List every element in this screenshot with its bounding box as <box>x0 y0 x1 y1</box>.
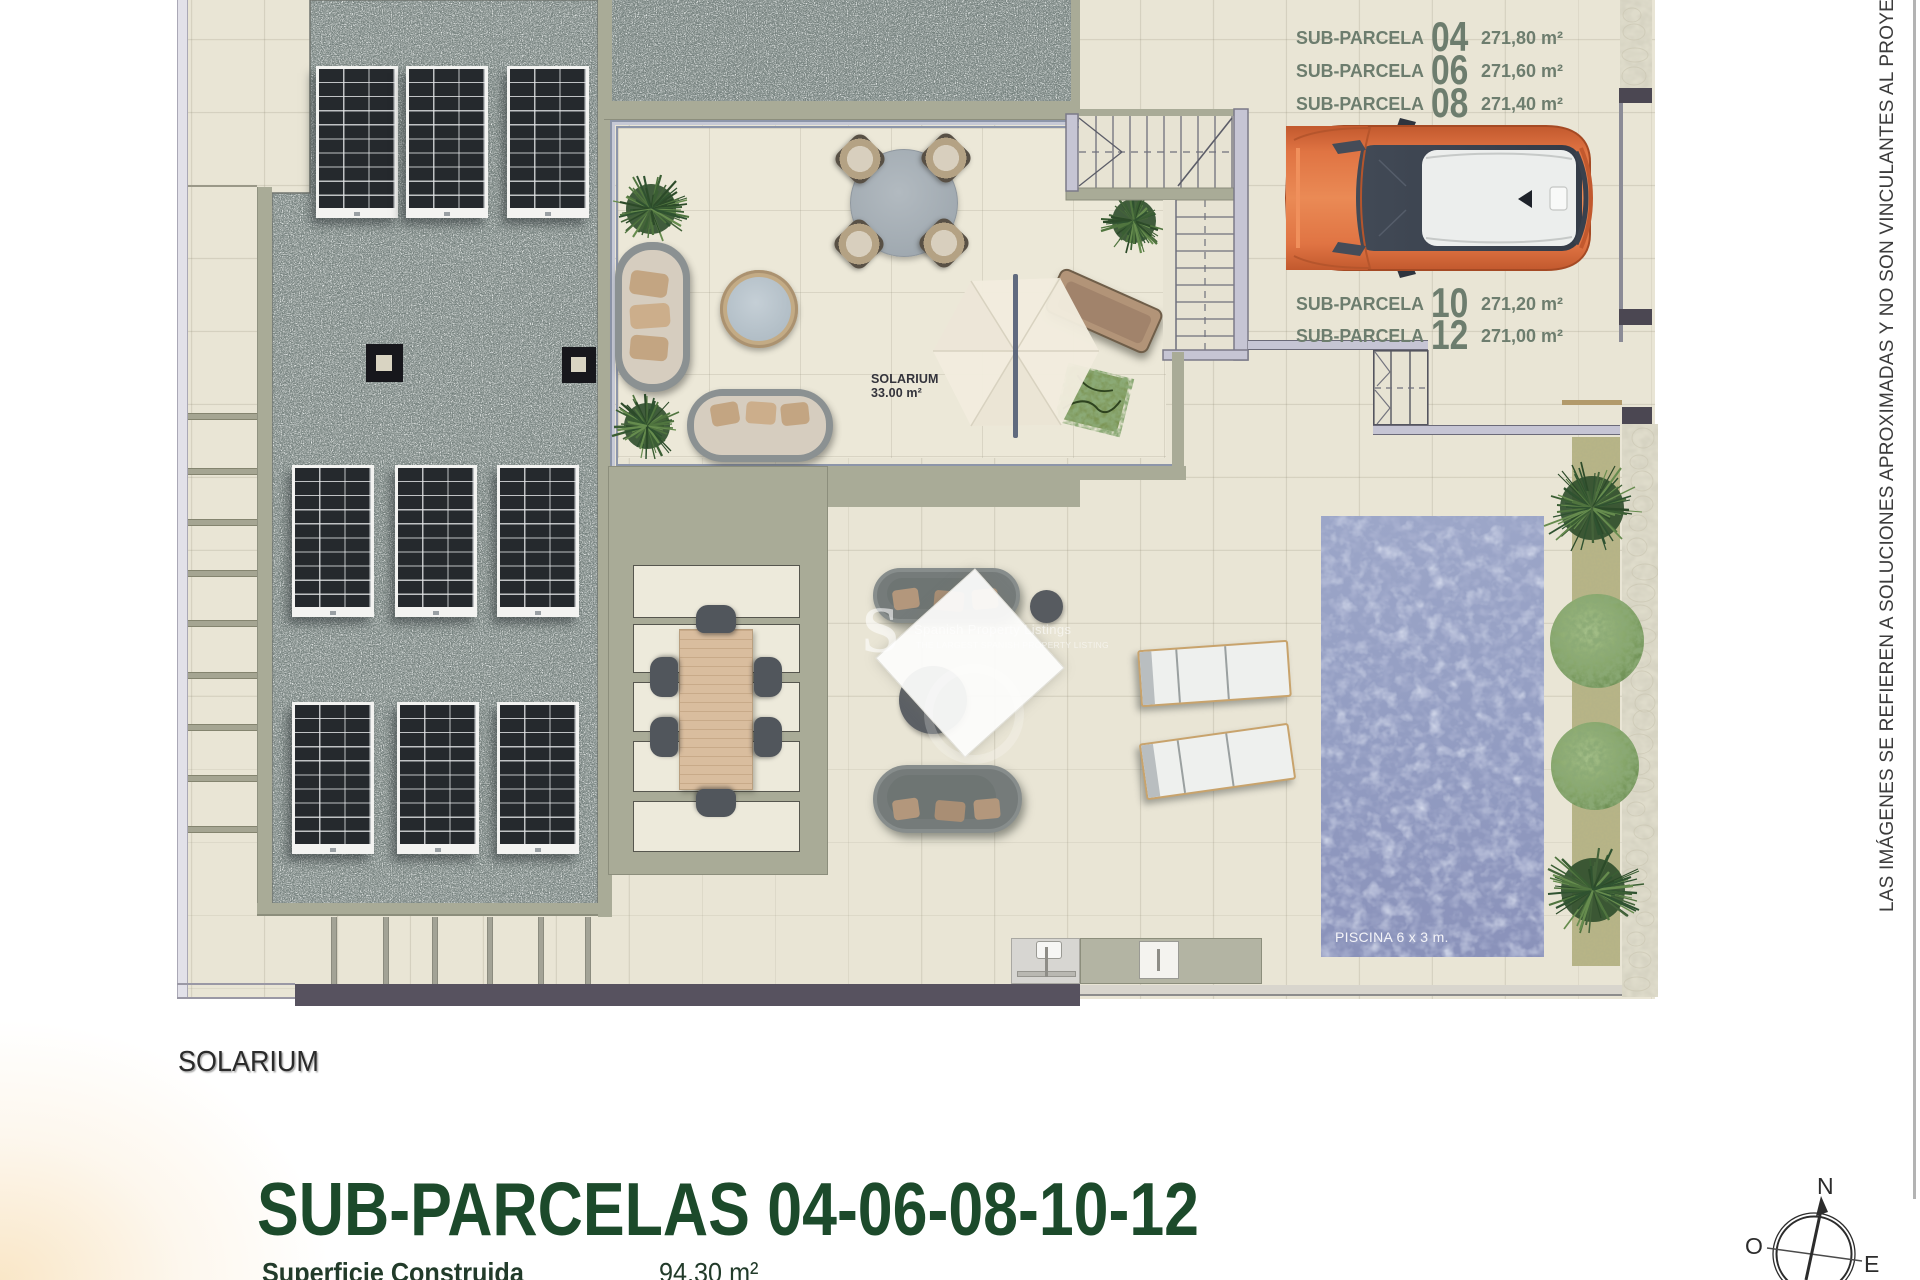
svg-text:N: N <box>1817 1173 1834 1199</box>
svg-text:O: O <box>1745 1233 1763 1259</box>
svg-text:E: E <box>1864 1251 1879 1277</box>
